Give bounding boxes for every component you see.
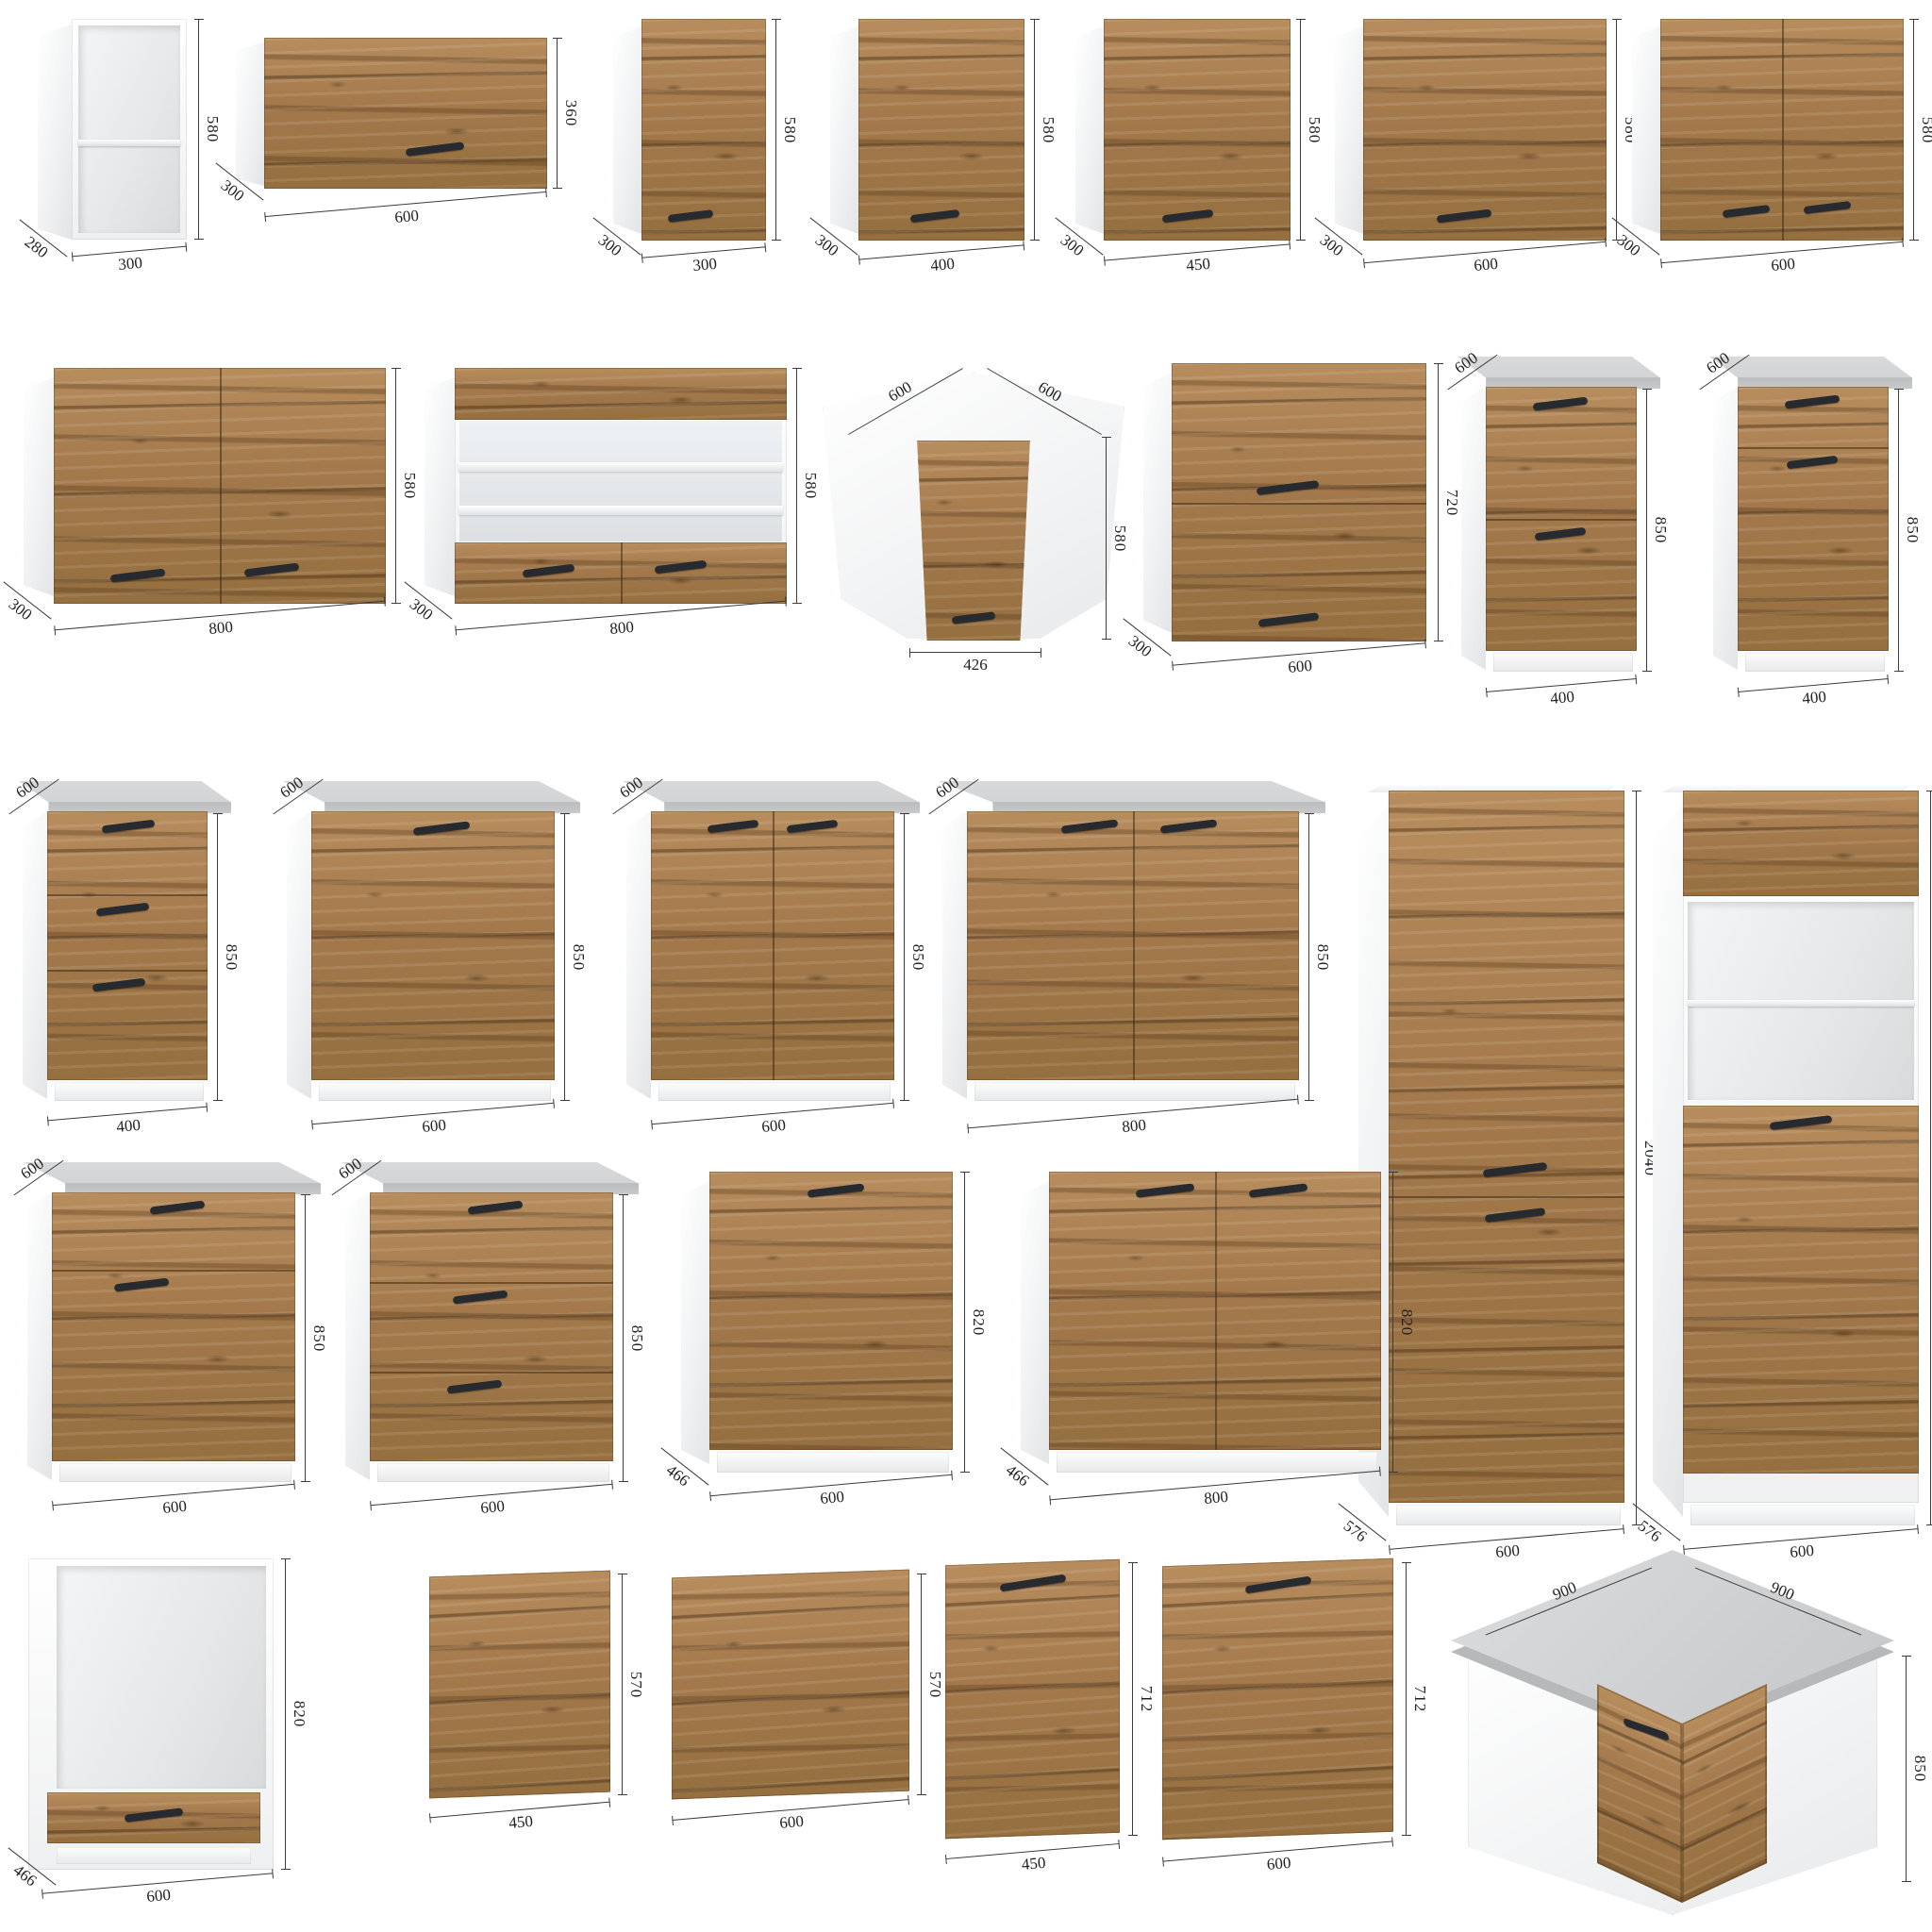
door-gap <box>1782 19 1784 241</box>
plinth <box>717 1452 949 1473</box>
dim-line-height: 850 <box>623 1194 624 1482</box>
dim-height-label: 580 <box>780 116 799 143</box>
countertop <box>19 781 231 813</box>
front-panel-handle-600x712: 712 600 <box>1162 1555 1455 1894</box>
door-handle-left <box>1061 819 1119 833</box>
door-gap <box>1215 1172 1217 1450</box>
plinth <box>1493 653 1633 672</box>
dim-height-label: 712 <box>1137 1686 1156 1713</box>
door <box>311 811 555 1080</box>
panel <box>429 1571 610 1799</box>
base-cabinet-2door-800x820-no-top: 820 800 466 <box>1021 1172 1436 1568</box>
base-cabinet-drawer-door-600x850: 850 600 600 <box>24 1162 354 1568</box>
fronts <box>1486 387 1637 651</box>
dim-line-width: 800 <box>55 601 386 631</box>
door-gap <box>1172 503 1426 505</box>
dim-line-width: 450 <box>1104 243 1290 260</box>
door-handle-right <box>655 560 708 575</box>
cabinet-side-panel <box>1632 26 1660 234</box>
cabinet-side-panel <box>942 811 967 1099</box>
drawer-fronts <box>370 1192 613 1461</box>
dim-width-label: 600 <box>1163 1844 1395 1883</box>
panel <box>1162 1558 1393 1840</box>
door-handle-left <box>708 820 759 834</box>
top-fascia <box>455 368 787 420</box>
oven-niche <box>57 1566 266 1789</box>
cabinet-side-panel <box>1461 387 1486 670</box>
dim-line-width: 600 <box>651 1103 893 1124</box>
flap-door <box>264 38 547 189</box>
dim-width-label: 600 <box>53 1488 297 1527</box>
dim-width-label: 600 <box>673 1803 911 1842</box>
dim-line-door-width: 426 <box>909 652 1041 653</box>
door-handle <box>1787 456 1839 470</box>
dim-line-width: 600 <box>1660 241 1903 263</box>
shelf <box>78 140 180 146</box>
dim-height-label: 820 <box>969 1308 988 1336</box>
carcass <box>1683 791 1919 1503</box>
dim-line-width: 600 <box>311 1103 554 1124</box>
dim-height-label: 712 <box>1410 1686 1429 1713</box>
door-gap <box>773 811 774 1080</box>
plinth <box>55 1082 204 1101</box>
open-cavity <box>78 25 180 233</box>
dim-width-label: 400 <box>1739 682 1890 714</box>
dim-line-width: 600 <box>52 1484 294 1506</box>
dim-line-width: 800 <box>456 601 787 631</box>
wall-cabinet-horizontal-600x360: 360 600 300 <box>236 38 594 255</box>
drawer-handle-2 <box>453 1290 508 1304</box>
dim-width-label: 800 <box>55 605 387 653</box>
wall-cabinet-2door-800x580: 580 800 300 <box>24 368 429 670</box>
dim-line-height: 850 <box>1906 1656 1907 1882</box>
wall-cabinet-2flap-600x720: 720 600 300 <box>1143 363 1474 708</box>
shelf <box>458 462 783 472</box>
dim-line-width: 600 <box>1172 642 1425 666</box>
door-handle-left <box>110 568 166 582</box>
tall-oven-cabinet-600x2040: 2040 600 576 <box>1653 791 1932 1621</box>
base-cabinet-2door-800x850: 850 800 600 <box>939 781 1354 1187</box>
plinth <box>658 1082 891 1101</box>
drawer-handle-3 <box>447 1379 503 1393</box>
dim-line-height: 570 <box>622 1574 623 1795</box>
door-handle <box>413 821 471 835</box>
dim-line-height: 580 <box>395 368 396 604</box>
corner-base-cabinet-900x900x850: 900 900 850 <box>1441 1542 1932 1929</box>
cabinet-catalog-sheet: { "colors": { "wood": "#a57c4f", "wood_d… <box>0 0 1932 1932</box>
wall-cabinet-300x580: 580 300 300 <box>613 19 811 302</box>
cabinet-side-panel <box>1143 373 1172 633</box>
countertop <box>24 1162 321 1194</box>
dim-line-height: 850 <box>1646 389 1647 672</box>
dim-width-label: 800 <box>1050 1474 1382 1523</box>
countertop <box>283 781 580 813</box>
base-cabinet-3drawer-600x850: 850 600 600 <box>341 1162 672 1568</box>
countertop <box>341 1162 639 1194</box>
dim-width-label: 300 <box>73 250 189 279</box>
cabinet-side-panel <box>425 377 455 596</box>
dim-line-height: 360 <box>557 38 558 189</box>
wall-cabinet-450x580: 580 450 300 <box>1075 19 1330 302</box>
wall-cabinet-open-carcass-300: 580 300 280 <box>38 19 245 292</box>
doors <box>54 368 386 604</box>
top-drawer-front <box>1683 791 1919 896</box>
dim-width-label: 600 <box>371 1488 615 1527</box>
dim-line-width: 400 <box>1486 678 1636 692</box>
dim-width-label: 600 <box>1364 245 1608 285</box>
panel <box>945 1559 1120 1839</box>
drawer-gap <box>52 1270 295 1272</box>
dim-line-width: 800 <box>1050 1471 1381 1501</box>
wall-cabinet-display-800x580: 580 800 300 <box>425 368 830 670</box>
door-handle <box>668 209 714 223</box>
doors <box>1660 19 1904 241</box>
door <box>1363 19 1607 241</box>
cabinet-side-panel <box>236 42 264 186</box>
dim-height-label: 850 <box>1313 943 1332 971</box>
flap-doors <box>1172 363 1426 641</box>
dim-line-width: 600 <box>265 192 547 217</box>
dim-line-height: 850 <box>904 813 905 1101</box>
door-handle <box>1624 1718 1670 1741</box>
base-cabinet-door-600x820-no-top: 820 600 466 <box>681 1172 1011 1568</box>
fronts <box>52 1192 295 1461</box>
base-cabinet-3drawer-400x850: 850 400 600 <box>19 781 274 1187</box>
dim-width-label: 450 <box>430 1806 612 1840</box>
dim-height-label: 850 <box>1651 517 1670 544</box>
bottom-drawer-front <box>47 1792 260 1843</box>
dim-width-label: 600 <box>1661 245 1906 285</box>
door <box>1104 19 1291 241</box>
door <box>641 19 766 241</box>
plinth <box>1690 1505 1915 1525</box>
dim-height-label: 580 <box>1039 116 1058 143</box>
door-handle-right <box>787 820 839 834</box>
dim-width-label: 600 <box>265 195 549 239</box>
panel-handle <box>1000 1574 1066 1592</box>
cabinet-carcass <box>72 19 187 240</box>
dim-height-label: 850 <box>1910 1756 1929 1783</box>
dim-height-label: 580 <box>1305 116 1324 143</box>
doors <box>967 811 1299 1080</box>
dim-line-height: 850 <box>1898 389 1899 672</box>
wall-cabinet-2door-600x580: 580 600 300 <box>1632 19 1932 302</box>
dim-line-width: 450 <box>429 1802 609 1819</box>
door-handle <box>406 142 465 156</box>
dim-width-label: 800 <box>968 1103 1300 1151</box>
dim-line-height: 820 <box>1392 1172 1393 1473</box>
door-handle-upper <box>1483 1162 1547 1177</box>
upper-handle <box>1533 396 1589 410</box>
flap-handle-bottom <box>1258 612 1319 627</box>
plinth <box>57 1847 251 1864</box>
dim-height-label: 580 <box>203 116 222 143</box>
drawer-fronts <box>47 811 208 1080</box>
dim-line-height: 720 <box>1438 363 1439 641</box>
niche-shelf <box>1688 1000 1914 1007</box>
dim-height-label: 850 <box>908 943 927 971</box>
drawer-handle <box>125 1807 184 1822</box>
dim-height-label: 820 <box>1397 1308 1416 1336</box>
dim-line-height: 850 <box>305 1194 306 1482</box>
panel-handle <box>1245 1576 1311 1594</box>
cabinet-side-panel <box>1021 1181 1049 1464</box>
dim-height-label: 850 <box>222 943 241 971</box>
doors <box>651 811 894 1080</box>
dim-line-height: 580 <box>775 19 776 241</box>
door-handle <box>1162 209 1214 224</box>
cabinet-side-panel <box>1335 26 1363 234</box>
door-handle-right <box>1804 201 1852 214</box>
dim-width-label: 300 <box>642 250 768 279</box>
plinth <box>319 1082 551 1101</box>
dim-line-height: 712 <box>1132 1562 1133 1836</box>
wall-cabinet-400x580: 580 400 300 <box>830 19 1066 302</box>
dim-width-label: 400 <box>859 248 1026 281</box>
door-handle <box>952 611 996 625</box>
dim-line-height: 712 <box>1406 1562 1407 1836</box>
dim-line-height: 850 <box>564 813 565 1101</box>
dim-height-label: 580 <box>1110 525 1129 552</box>
drawer-handle-1 <box>468 1200 524 1214</box>
glass-open-section <box>458 420 783 542</box>
plinth <box>1057 1452 1377 1473</box>
dim-line-width: 450 <box>945 1843 1119 1859</box>
dim-width-label: 600 <box>710 1478 955 1518</box>
dim-height-label: 580 <box>801 473 820 500</box>
dim-line-height: 580 <box>1034 19 1035 241</box>
door-handle-lower <box>1485 1207 1545 1223</box>
dim-line-width: 400 <box>1738 678 1888 692</box>
front-panel-450x570: 570 450 <box>429 1568 675 1851</box>
dim-line-depth: 576 <box>1632 1503 1680 1541</box>
flap-handle-top <box>1257 480 1319 495</box>
door-handle <box>910 209 960 223</box>
dim-line-height: 580 <box>198 19 199 240</box>
bottom-doors <box>455 542 787 604</box>
dim-height-label: 570 <box>626 1671 645 1698</box>
dim-width-label: 400 <box>48 1110 209 1143</box>
door-handle-right <box>1160 819 1218 833</box>
countertop <box>623 781 920 813</box>
dim-line-width: 400 <box>858 244 1024 259</box>
cabinet-side-panel <box>23 811 47 1099</box>
dim-width-label: 450 <box>1105 247 1292 282</box>
dim-line-height: 820 <box>285 1558 286 1870</box>
dim-height-label: 580 <box>400 473 419 500</box>
door-handle-left <box>1723 205 1771 218</box>
dim-line-height: 580 <box>1300 19 1301 241</box>
door-handle <box>1437 208 1492 223</box>
dim-height-label: 850 <box>1903 517 1922 544</box>
bottom-door <box>1683 1106 1919 1474</box>
corner-wall-cabinet-600x600x580: 600 600 580 426 <box>823 363 1134 684</box>
panel <box>672 1570 909 1800</box>
cabinet-side-panel <box>626 811 651 1099</box>
dim-line-height: 2040 <box>1636 791 1637 1525</box>
dim-width-label: 600 <box>312 1107 557 1146</box>
dim-line-width: 400 <box>47 1107 207 1122</box>
front-panel-600x570: 570 600 <box>672 1568 974 1851</box>
dim-door-width-label: 426 <box>909 656 1041 675</box>
door <box>709 1172 953 1450</box>
cabinet-side-panel <box>27 1192 52 1480</box>
front-panel-handle-450x712: 712 450 <box>945 1555 1181 1894</box>
drawer-gap <box>47 970 208 972</box>
dim-line-width: 600 <box>1162 1840 1392 1861</box>
cabinet-side-panel <box>1075 26 1104 234</box>
door-handle-right <box>244 562 300 576</box>
dim-line-width: 600 <box>709 1474 952 1496</box>
drawer-gap <box>370 1372 613 1374</box>
base-cabinet-2door-600x850: 850 600 600 <box>623 781 953 1187</box>
dim-line-height: 850 <box>1308 813 1309 1101</box>
drawer-gap <box>370 1282 613 1284</box>
dim-line-width: 600 <box>672 1799 908 1821</box>
dim-line-width: 600 <box>42 1873 273 1893</box>
countertop <box>939 781 1325 813</box>
plinth <box>1745 653 1885 672</box>
plinth <box>377 1463 609 1482</box>
cabinet-side-panel <box>24 377 54 596</box>
front-gap <box>1486 519 1637 521</box>
door-handle <box>114 1277 170 1291</box>
dim-line-height: 820 <box>964 1172 965 1473</box>
dim-line-width: 800 <box>968 1099 1299 1129</box>
base-cabinet-door-600x850: 850 600 600 <box>283 781 613 1187</box>
dim-height-label: 850 <box>627 1324 646 1352</box>
cabinet-side-panel <box>38 25 72 240</box>
dim-height-label: 580 <box>1918 116 1932 143</box>
doors <box>1049 1172 1381 1450</box>
oven-housing-cabinet-600x820: 820 600 466 <box>28 1558 340 1932</box>
plinth <box>59 1463 291 1482</box>
dim-line-height: 580 <box>1616 19 1617 241</box>
dim-height-label: 850 <box>309 1324 328 1352</box>
door-handle-left <box>1136 1183 1195 1197</box>
door-gap <box>621 542 623 604</box>
door-gap <box>220 368 222 604</box>
base-cabinet-door-400x850: 850 400 600 <box>1457 357 1703 753</box>
dim-line-height: 2040 <box>1930 791 1931 1525</box>
cabinet-side-panel <box>345 1192 370 1480</box>
drawer-handle-3 <box>92 978 146 992</box>
plinth <box>974 1082 1295 1101</box>
dim-width-label: 450 <box>946 1847 1122 1881</box>
cabinet-side-panel <box>1653 804 1683 1517</box>
dim-line-height: 580 <box>1913 19 1914 241</box>
door-handle-left <box>523 564 575 578</box>
fronts <box>1738 387 1889 651</box>
dim-height-label: 570 <box>925 1671 944 1698</box>
door-gap <box>1133 811 1135 1080</box>
display-carcass <box>455 368 787 604</box>
drawer-gap <box>1738 447 1889 449</box>
drawer-handle-1 <box>102 820 156 834</box>
shelf <box>458 506 783 515</box>
dim-line-height: 570 <box>921 1574 922 1795</box>
dim-line-width: 300 <box>72 246 187 258</box>
dim-line-width: 600 <box>1363 241 1606 263</box>
dim-height-label: 820 <box>290 1701 308 1728</box>
lower-handle <box>1535 527 1587 541</box>
dim-height-label: 850 <box>569 943 588 971</box>
dim-line-height: 580 <box>1106 437 1107 640</box>
cabinet-side-panel <box>613 26 641 234</box>
dim-height-label: 360 <box>561 100 580 127</box>
drawer-handle <box>150 1200 206 1214</box>
cabinet-side-panel <box>287 811 311 1099</box>
drawer-gap <box>47 894 208 896</box>
dim-line-depth: 600 <box>929 779 979 815</box>
dim-line-height: 580 <box>796 368 797 604</box>
dim-width-label: 400 <box>1487 682 1639 714</box>
drawer-handle-2 <box>96 903 150 917</box>
dim-width-label: 800 <box>456 605 788 653</box>
cabinet-side-panel <box>681 1181 709 1464</box>
dim-line-width: 600 <box>370 1484 612 1506</box>
base-cabinet-drawer-door-400x850: 850 400 600 <box>1709 357 1932 753</box>
cabinet-side-panel <box>1713 387 1738 670</box>
cabinet-side-panel <box>830 26 858 234</box>
dim-width-label: 600 <box>652 1107 896 1146</box>
door-handle <box>1770 1115 1832 1130</box>
door-handle <box>808 1183 865 1197</box>
door <box>858 19 1024 241</box>
corner-door <box>912 441 1035 641</box>
dim-width-label: 600 <box>1173 646 1428 687</box>
housing-carcass <box>28 1558 274 1870</box>
drawer-handle <box>1785 394 1840 408</box>
wall-cabinet-600x580: 580 600 300 <box>1335 19 1646 302</box>
dim-width-label: 600 <box>42 1876 275 1915</box>
door-handle-right <box>1249 1183 1308 1197</box>
dim-line-width: 300 <box>641 246 766 258</box>
dim-line-height: 850 <box>217 813 218 1101</box>
